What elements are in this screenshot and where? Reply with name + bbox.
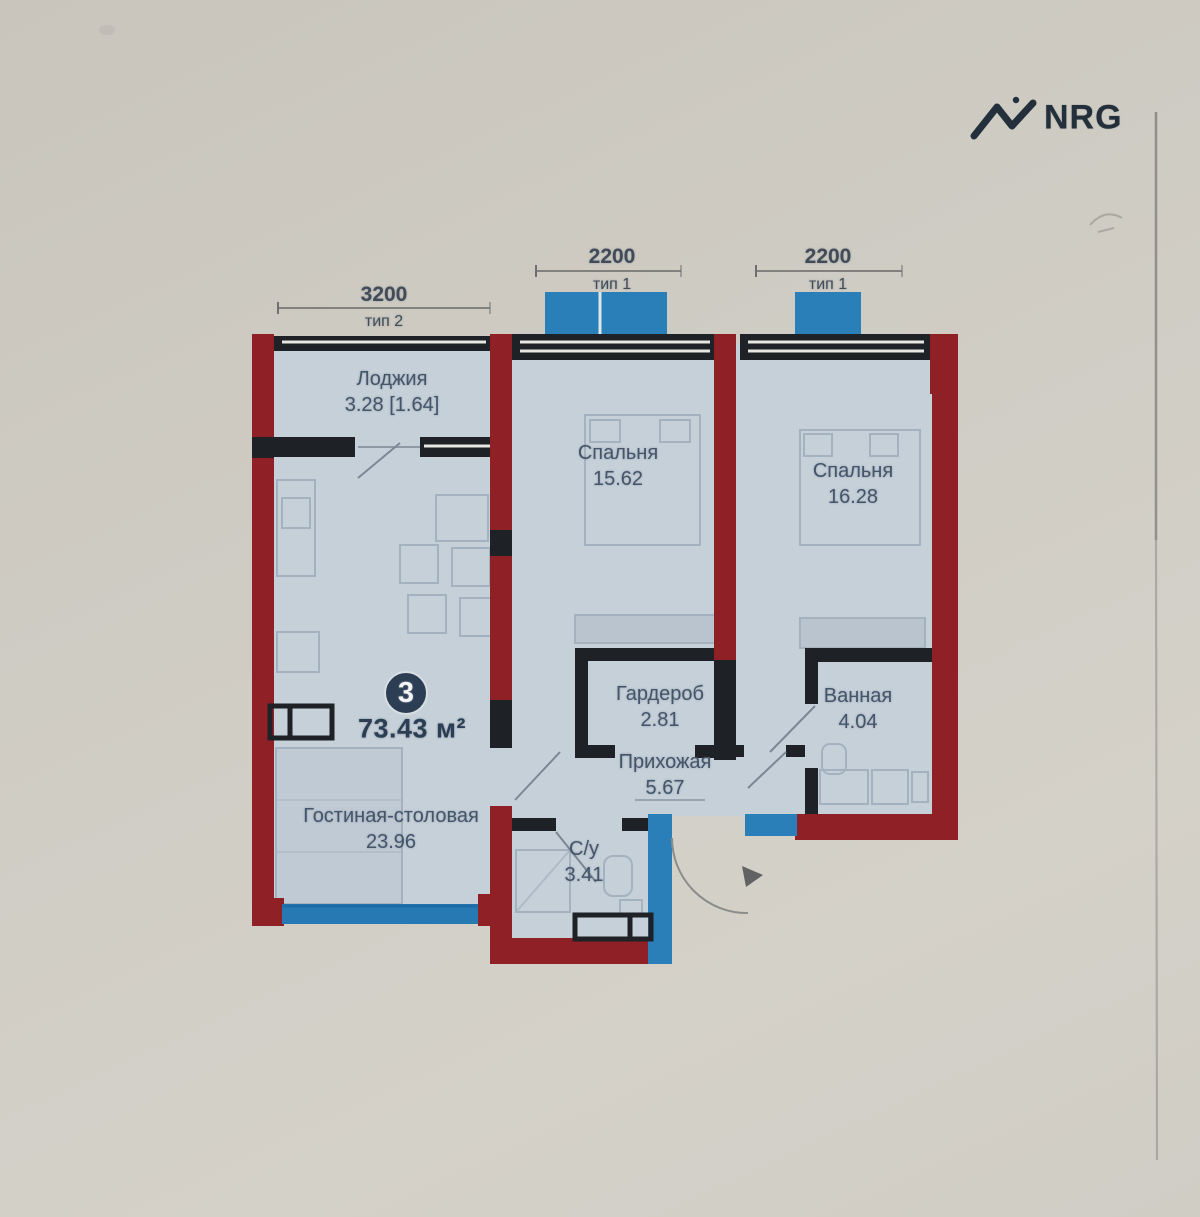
paper-fold-line xyxy=(1156,112,1157,1160)
room-name: С/у xyxy=(565,836,604,862)
room-label-wc: С/у 3.41 xyxy=(565,836,604,888)
brand-logo-text: NRG xyxy=(1044,99,1123,138)
room-label-bedroom2: Спальня 16.28 xyxy=(813,458,893,510)
dim-2200b-value: 2200 xyxy=(805,245,852,269)
room-area: 23.96 xyxy=(303,829,479,855)
room-label-bedroom1: Спальня 15.62 xyxy=(578,440,658,492)
dim-2200a-value: 2200 xyxy=(589,245,636,269)
room-label-hallway: Прихожая 5.67 xyxy=(619,749,712,801)
balcony-window-middle xyxy=(545,292,667,334)
room-name: Гардероб xyxy=(616,681,704,707)
entrance-mark xyxy=(742,866,763,887)
floor-plan-page: NRG 3200 тип 2 2200 тип 1 2200 тип 1 Лод… xyxy=(0,0,1200,1217)
room-name: Гостиная-столовая xyxy=(303,803,479,829)
room-name: Прихожая xyxy=(619,749,712,775)
room-area: 4.04 xyxy=(824,709,893,735)
room-area: 2.81 xyxy=(616,707,704,733)
room-area: 16.28 xyxy=(813,484,893,510)
room-area: 3.41 xyxy=(565,862,604,888)
room-label-wardrobe: Гардероб 2.81 xyxy=(616,681,704,733)
room-area: 3.28 [1.64] xyxy=(345,392,440,418)
room-name: Лоджия xyxy=(345,366,440,392)
entry-wall-blue xyxy=(745,814,797,836)
floor-plan-drawing xyxy=(0,0,1200,1217)
room-label-loggia: Лоджия 3.28 [1.64] xyxy=(345,366,440,418)
dim-2200a-type: тип 1 xyxy=(593,276,631,294)
balcony-window-right xyxy=(795,292,861,334)
total-area-label: 73.43 м² xyxy=(358,714,466,745)
dim-3200-type: тип 2 xyxy=(365,313,403,331)
room-area: 15.62 xyxy=(578,466,658,492)
nrg-zigzag-icon xyxy=(974,97,1033,136)
dim-2200b-type: тип 1 xyxy=(809,276,847,294)
room-label-bathroom: Ванная 4.04 xyxy=(824,683,893,735)
room-label-living: Гостиная-столовая 23.96 xyxy=(303,803,479,855)
rooms-count-badge: 3 xyxy=(384,671,428,715)
room-name: Спальня xyxy=(813,458,893,484)
room-name: Спальня xyxy=(578,440,658,466)
room-name: Ванная xyxy=(824,683,893,709)
room-area: 5.67 xyxy=(619,775,712,801)
dim-3200-value: 3200 xyxy=(361,283,408,307)
